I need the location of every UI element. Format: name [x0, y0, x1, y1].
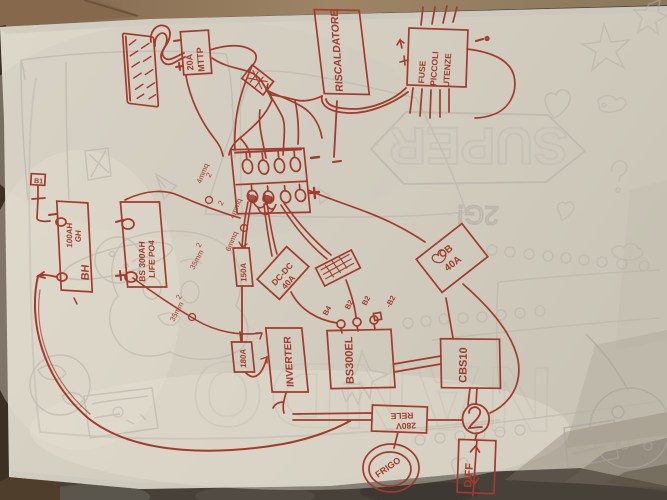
svg-text:MTTP: MTTP	[195, 47, 207, 72]
svg-text:20A: 20A	[184, 53, 195, 71]
svg-text:180A: 180A	[239, 348, 249, 368]
svg-text:100AH: 100AH	[65, 222, 74, 248]
svg-text:CBS10: CBS10	[457, 347, 470, 383]
svg-text:FUSE: FUSE	[416, 60, 428, 84]
svg-text:RELE: RELE	[390, 410, 413, 421]
svg-text:B1: B1	[34, 178, 43, 185]
svg-text:LIFE PO4: LIFE PO4	[146, 240, 157, 279]
svg-text:GH: GH	[74, 229, 83, 242]
svg-text:BS300EL: BS300EL	[343, 336, 357, 384]
svg-text:SUPER: SUPER	[388, 116, 567, 174]
svg-text:150A: 150A	[239, 262, 249, 282]
svg-text:280V: 280V	[396, 421, 417, 432]
svg-text:BH: BH	[80, 264, 92, 281]
svg-text:2G!: 2G!	[456, 199, 499, 230]
